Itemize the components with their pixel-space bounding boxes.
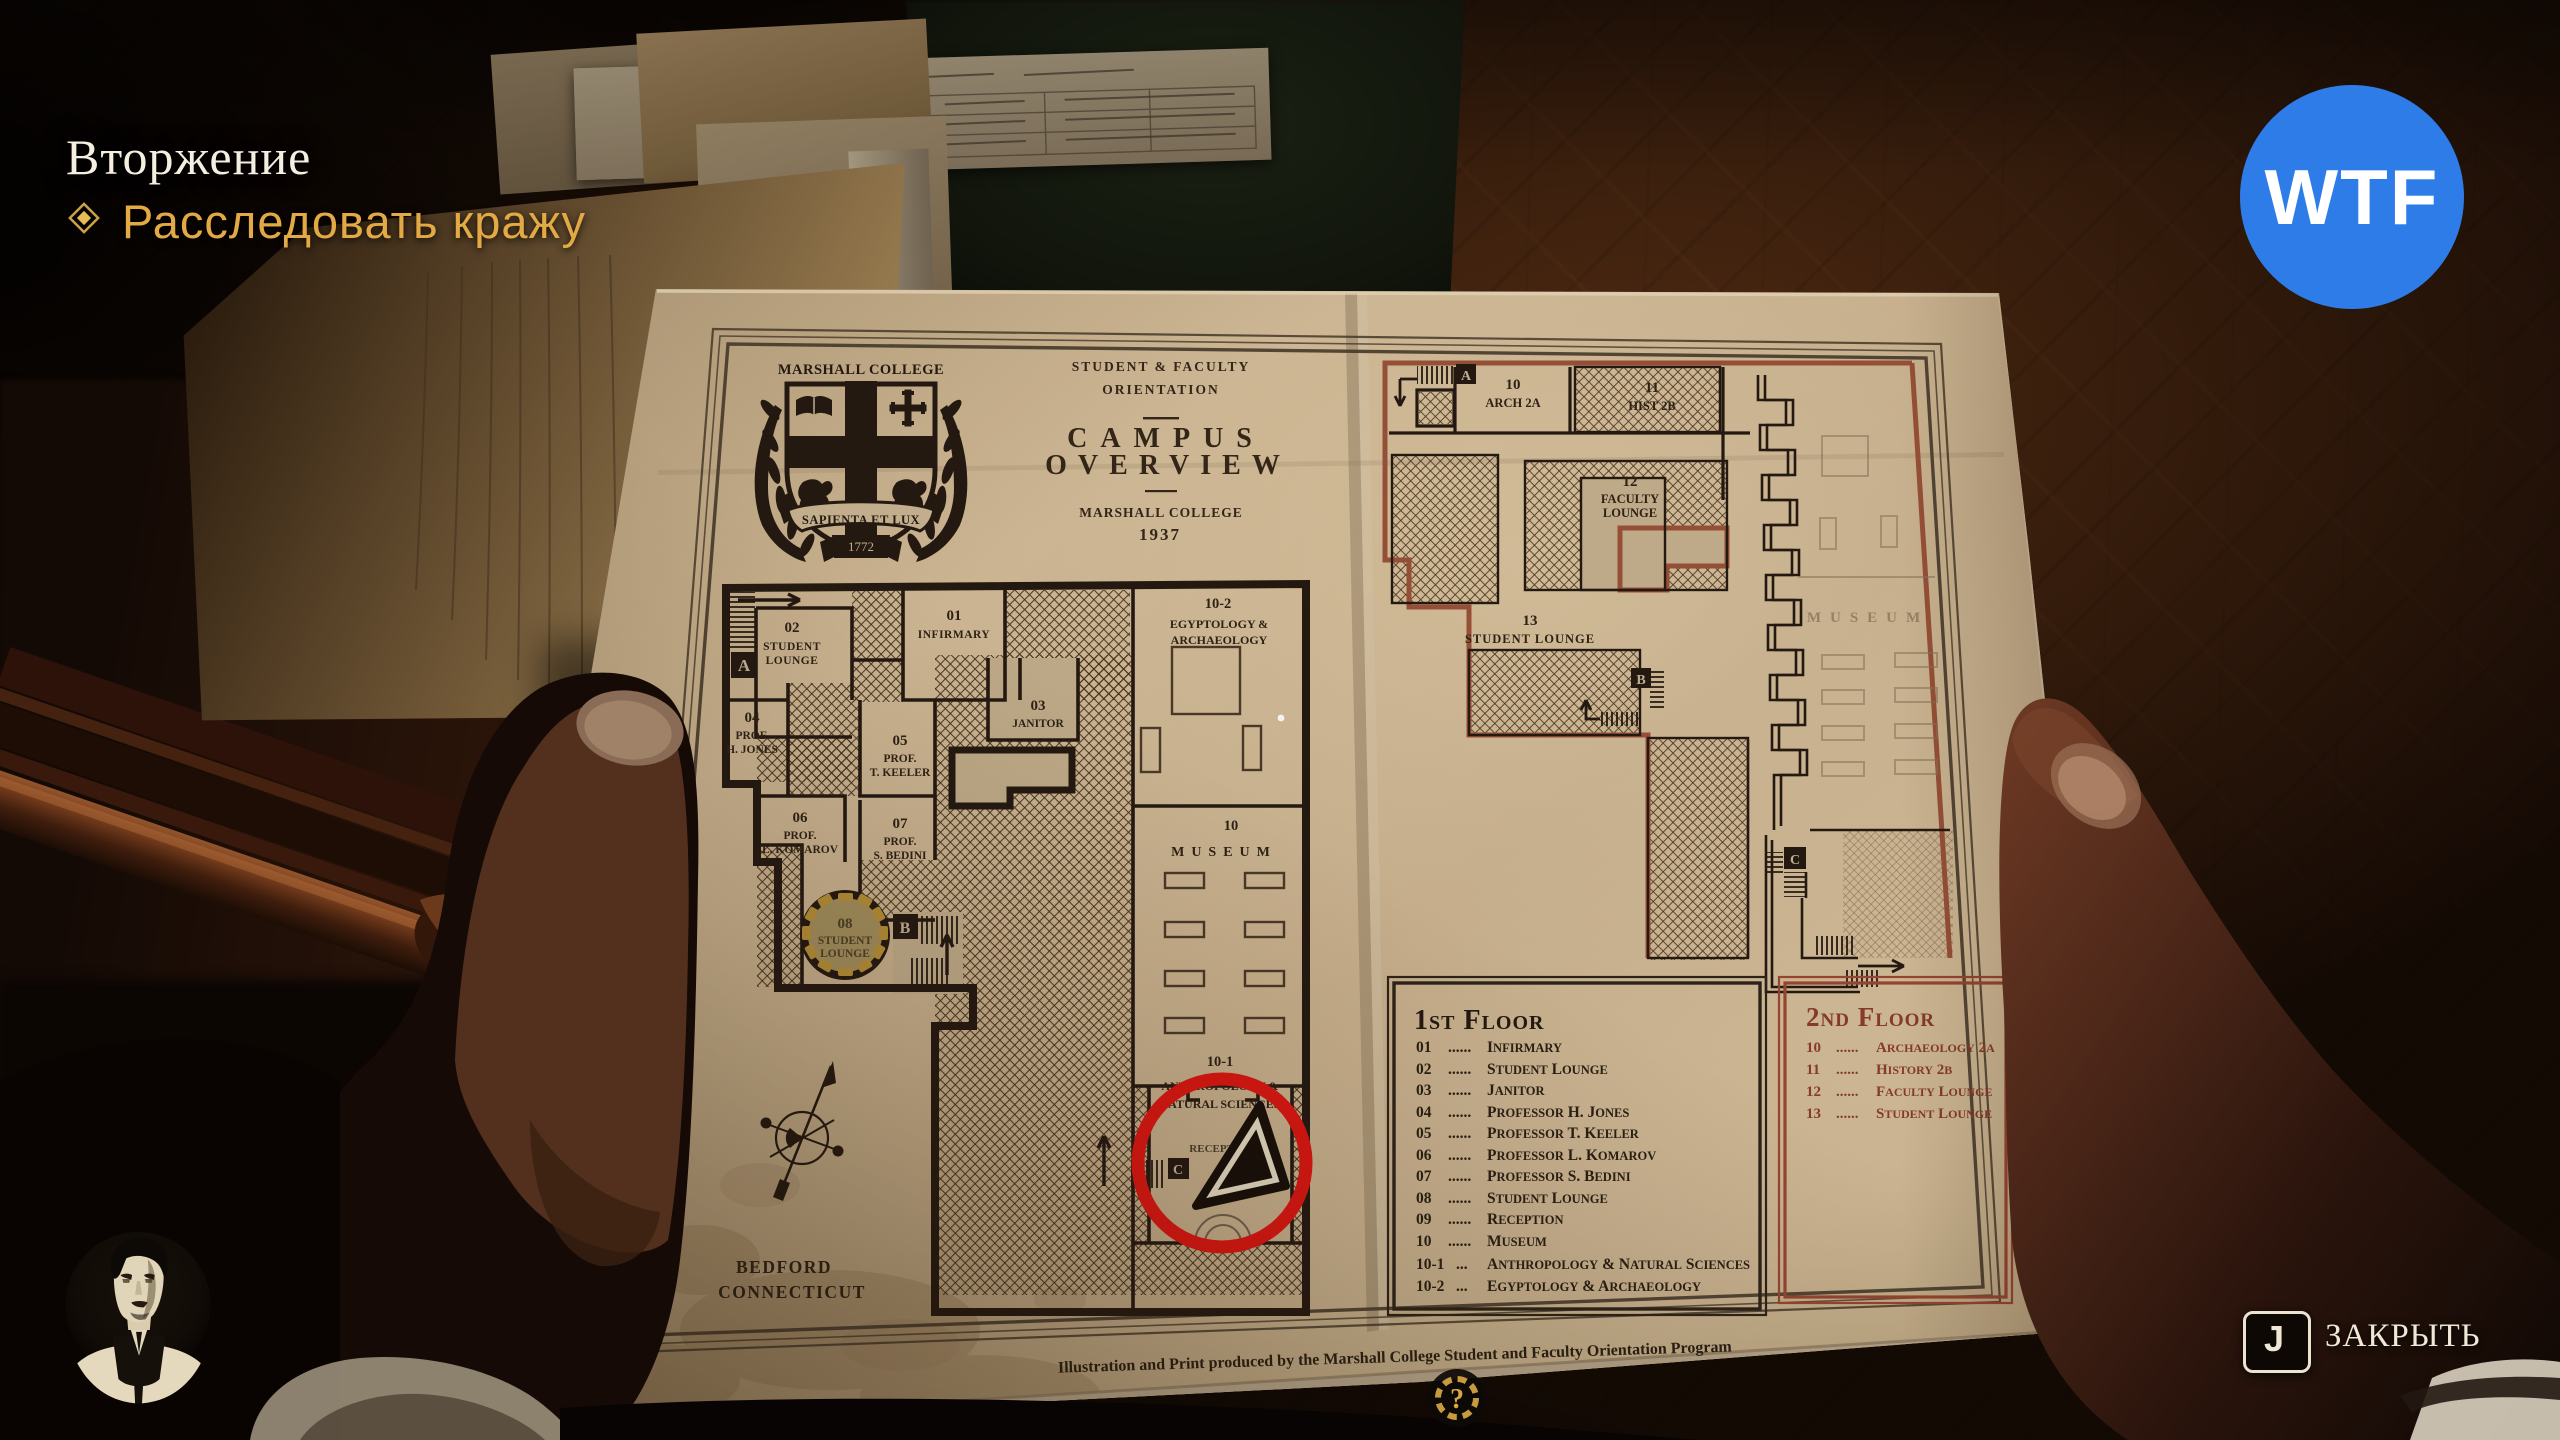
- svg-text:?: ?: [1450, 1384, 1464, 1415]
